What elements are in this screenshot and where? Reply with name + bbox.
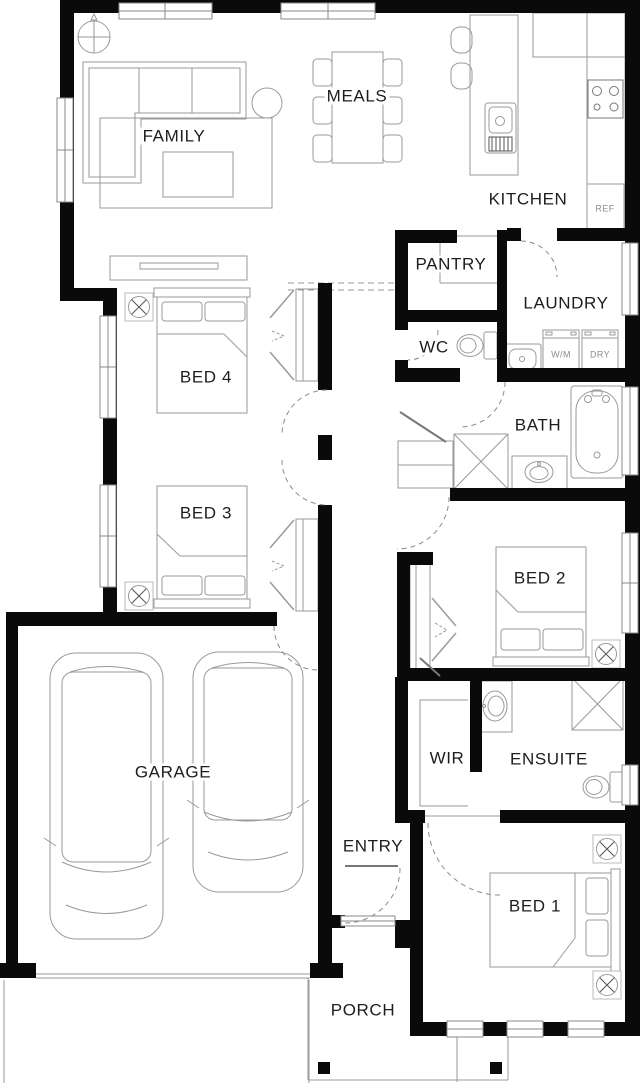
ceiling-fan-icon — [125, 293, 153, 321]
car — [44, 653, 169, 939]
room-label-laundry: LAUNDRY — [521, 295, 610, 312]
room-label-pantry: PANTRY — [414, 256, 489, 273]
wall — [397, 552, 433, 565]
bed2-wardrobe — [410, 558, 456, 670]
room-label-entry: ENTRY — [341, 838, 405, 855]
bed2-bed — [493, 547, 589, 666]
linen-door-leaf — [400, 412, 446, 442]
window — [281, 3, 375, 19]
ceiling-fan-icon — [593, 971, 621, 999]
room-label-ensuite: ENSUITE — [508, 751, 590, 768]
ceiling-fan-icon — [592, 640, 620, 668]
wall — [318, 612, 332, 626]
wall — [0, 963, 36, 978]
furniture-layer — [4, 13, 625, 1083]
bed4-door-arc — [282, 390, 327, 435]
bed4-bed — [154, 288, 250, 413]
wc-toilet — [457, 332, 497, 359]
window — [100, 316, 116, 418]
entry-sidelight — [341, 916, 395, 926]
porch-post — [318, 1062, 330, 1074]
wall — [395, 920, 423, 948]
wall — [395, 677, 408, 820]
room-label-meals: MEALS — [325, 88, 390, 105]
room-label-garage: GARAGE — [133, 764, 213, 781]
driveway — [4, 980, 309, 1083]
wall — [6, 612, 18, 978]
windows-layer — [57, 3, 638, 1037]
cooktop — [588, 80, 623, 118]
dining-table — [313, 52, 402, 163]
ceiling-fan-icon — [78, 14, 110, 53]
room-label-bed3: BED 3 — [178, 505, 234, 522]
wall — [395, 310, 507, 322]
bench-top — [533, 13, 625, 57]
wall — [507, 368, 625, 382]
bench-right — [587, 13, 625, 230]
fridge-label: REF — [594, 205, 615, 214]
window — [507, 1021, 543, 1037]
wall — [450, 488, 625, 501]
kitchen-sink — [485, 103, 516, 153]
wall — [497, 230, 507, 382]
ensuite-toilet — [583, 772, 623, 802]
room-label-bed2: BED 2 — [512, 570, 568, 587]
washer-label: W/M — [550, 351, 572, 360]
coffee-table — [163, 152, 233, 197]
bathtub — [571, 386, 623, 478]
window — [447, 1021, 483, 1037]
shower — [454, 434, 508, 489]
room-label-family: FAMILY — [141, 128, 208, 145]
garage-door — [36, 974, 310, 978]
side-table — [252, 88, 282, 118]
window — [622, 533, 638, 633]
wall — [395, 230, 457, 243]
bed1-bed — [490, 869, 620, 971]
wall — [625, 0, 640, 1036]
window — [622, 243, 638, 315]
room-label-wir: WIR — [428, 750, 467, 767]
bed3-wardrobe — [270, 519, 318, 611]
stool — [451, 27, 472, 89]
room-label-bed1: BED 1 — [507, 898, 563, 915]
tv-unit — [110, 256, 247, 280]
bed1-door-arc — [428, 823, 500, 895]
room-label-bed4: BED 4 — [178, 369, 234, 386]
linen-cupboard — [398, 441, 453, 488]
room-label-porch: PORCH — [329, 1002, 397, 1019]
wall — [500, 810, 625, 823]
wall — [318, 283, 332, 390]
dryer-label: DRY — [589, 351, 611, 360]
wall — [470, 681, 482, 772]
wall — [397, 668, 625, 681]
wall — [395, 810, 425, 823]
sofa — [83, 62, 246, 183]
ensuite-vanity — [479, 681, 512, 732]
window — [622, 387, 638, 475]
wall — [397, 552, 410, 668]
wall — [318, 505, 332, 612]
porch-post — [490, 1062, 502, 1074]
wall — [557, 228, 625, 241]
wall — [318, 626, 332, 978]
garage-door-arc — [274, 626, 318, 670]
front-door-arc — [345, 868, 400, 923]
ceiling-fan-icon — [593, 835, 621, 863]
floor-plan-drawing — [0, 0, 640, 1083]
window — [568, 1021, 604, 1037]
laundry-door-arc — [521, 241, 557, 277]
window — [57, 98, 73, 202]
ensuite-shower — [572, 678, 623, 730]
window — [119, 3, 212, 19]
window — [622, 765, 638, 805]
ceiling-fan-icon — [125, 582, 153, 610]
bed4-wardrobe — [270, 289, 318, 381]
bed3-door-arc — [282, 460, 327, 505]
wall — [507, 228, 521, 241]
room-label-kitchen: KITCHEN — [487, 191, 570, 208]
floor-plan: FAMILY MEALS KITCHEN PANTRY LAUNDRY WC B… — [0, 0, 640, 1083]
wall — [395, 368, 460, 382]
room-label-wc: WC — [417, 339, 451, 356]
bath-vanity — [512, 456, 567, 489]
room-label-bath: BATH — [513, 417, 563, 434]
window — [100, 485, 116, 587]
bath-door-arc — [460, 382, 505, 427]
wall — [6, 612, 277, 626]
wall — [318, 435, 332, 460]
bed2-door-arc — [397, 497, 449, 549]
